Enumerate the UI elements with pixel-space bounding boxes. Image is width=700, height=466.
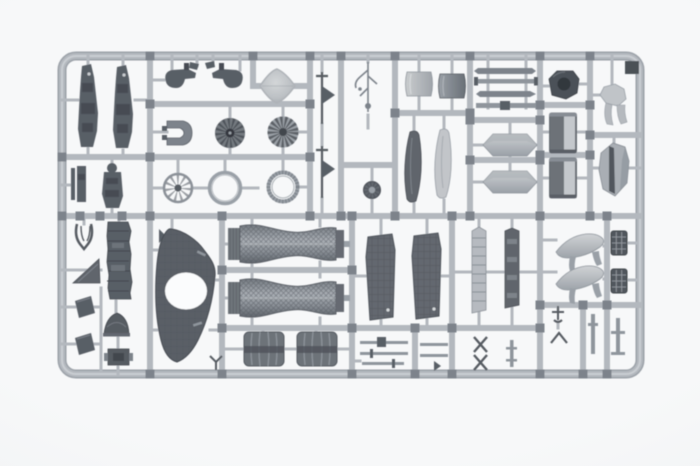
cylinder-half-part bbox=[550, 158, 577, 198]
cylinder-half-part bbox=[550, 113, 577, 153]
pad-plate-part bbox=[75, 296, 95, 318]
intake-ramp-panel-part bbox=[412, 233, 441, 319]
nose-cone-part bbox=[260, 69, 295, 103]
intake-lip-part bbox=[406, 72, 433, 96]
ribbed-cylinder-part bbox=[244, 332, 284, 366]
twist-parts bbox=[474, 337, 517, 370]
wishbone-fork-part bbox=[76, 224, 92, 249]
canopy-shell-part bbox=[556, 234, 604, 272]
mini-seat-part bbox=[102, 163, 123, 208]
small-rod-parts bbox=[360, 337, 448, 371]
intake-lip-part bbox=[439, 74, 466, 98]
intake-ramp-panel-part bbox=[366, 234, 395, 320]
anchor-part bbox=[552, 306, 564, 322]
zigzag-part bbox=[551, 333, 567, 343]
afterburner-pipe-part bbox=[228, 225, 350, 263]
narrow-strip-light-part bbox=[472, 227, 486, 313]
sprue-photo bbox=[0, 0, 700, 466]
narrow-strip-dark-part bbox=[505, 228, 519, 308]
turbine-fan-light-part bbox=[268, 117, 299, 148]
blade-antenna-part bbox=[316, 72, 335, 124]
curved-duct-panel-part bbox=[156, 229, 215, 362]
plain-ring-part bbox=[210, 173, 241, 204]
grille-plate-part bbox=[611, 231, 627, 255]
ejection-seat-part bbox=[78, 64, 98, 147]
pad-plate-part bbox=[75, 333, 95, 355]
drop-tank-half-part bbox=[483, 171, 537, 193]
dome-fairing-part bbox=[103, 313, 130, 337]
ejection-seat-part bbox=[113, 65, 133, 148]
blade-antenna-part bbox=[316, 146, 335, 198]
ribbed-ring-part bbox=[269, 173, 298, 202]
ribbed-cylinder-part bbox=[297, 332, 337, 366]
spoked-wheel-part bbox=[164, 174, 192, 202]
hex-panel-part bbox=[599, 143, 629, 196]
canopy-shell-part bbox=[556, 266, 604, 304]
thin-spar-parts bbox=[474, 68, 538, 110]
corner-block-part bbox=[625, 61, 639, 74]
afterburner-pipe-part bbox=[228, 279, 350, 317]
equipment-box-part bbox=[104, 349, 133, 365]
long-blade-part bbox=[405, 131, 422, 202]
small-clip-part bbox=[189, 61, 215, 70]
small-wheel-part bbox=[364, 182, 381, 199]
exhaust-collar-part bbox=[549, 71, 579, 99]
sprue bbox=[58, 52, 641, 379]
gear-leg-fairing-part bbox=[600, 84, 627, 125]
pitot-branch-part bbox=[356, 62, 378, 112]
hook-bracket-part bbox=[212, 63, 243, 88]
cockpit-tub-part bbox=[107, 222, 132, 299]
sprue-photo-svg bbox=[0, 0, 700, 466]
turbine-fan-dark-part bbox=[215, 118, 245, 148]
long-blade-part bbox=[435, 129, 452, 198]
grille-plate-part bbox=[611, 269, 627, 293]
bar-part bbox=[71, 166, 86, 202]
drop-tank-half-part bbox=[483, 134, 537, 156]
